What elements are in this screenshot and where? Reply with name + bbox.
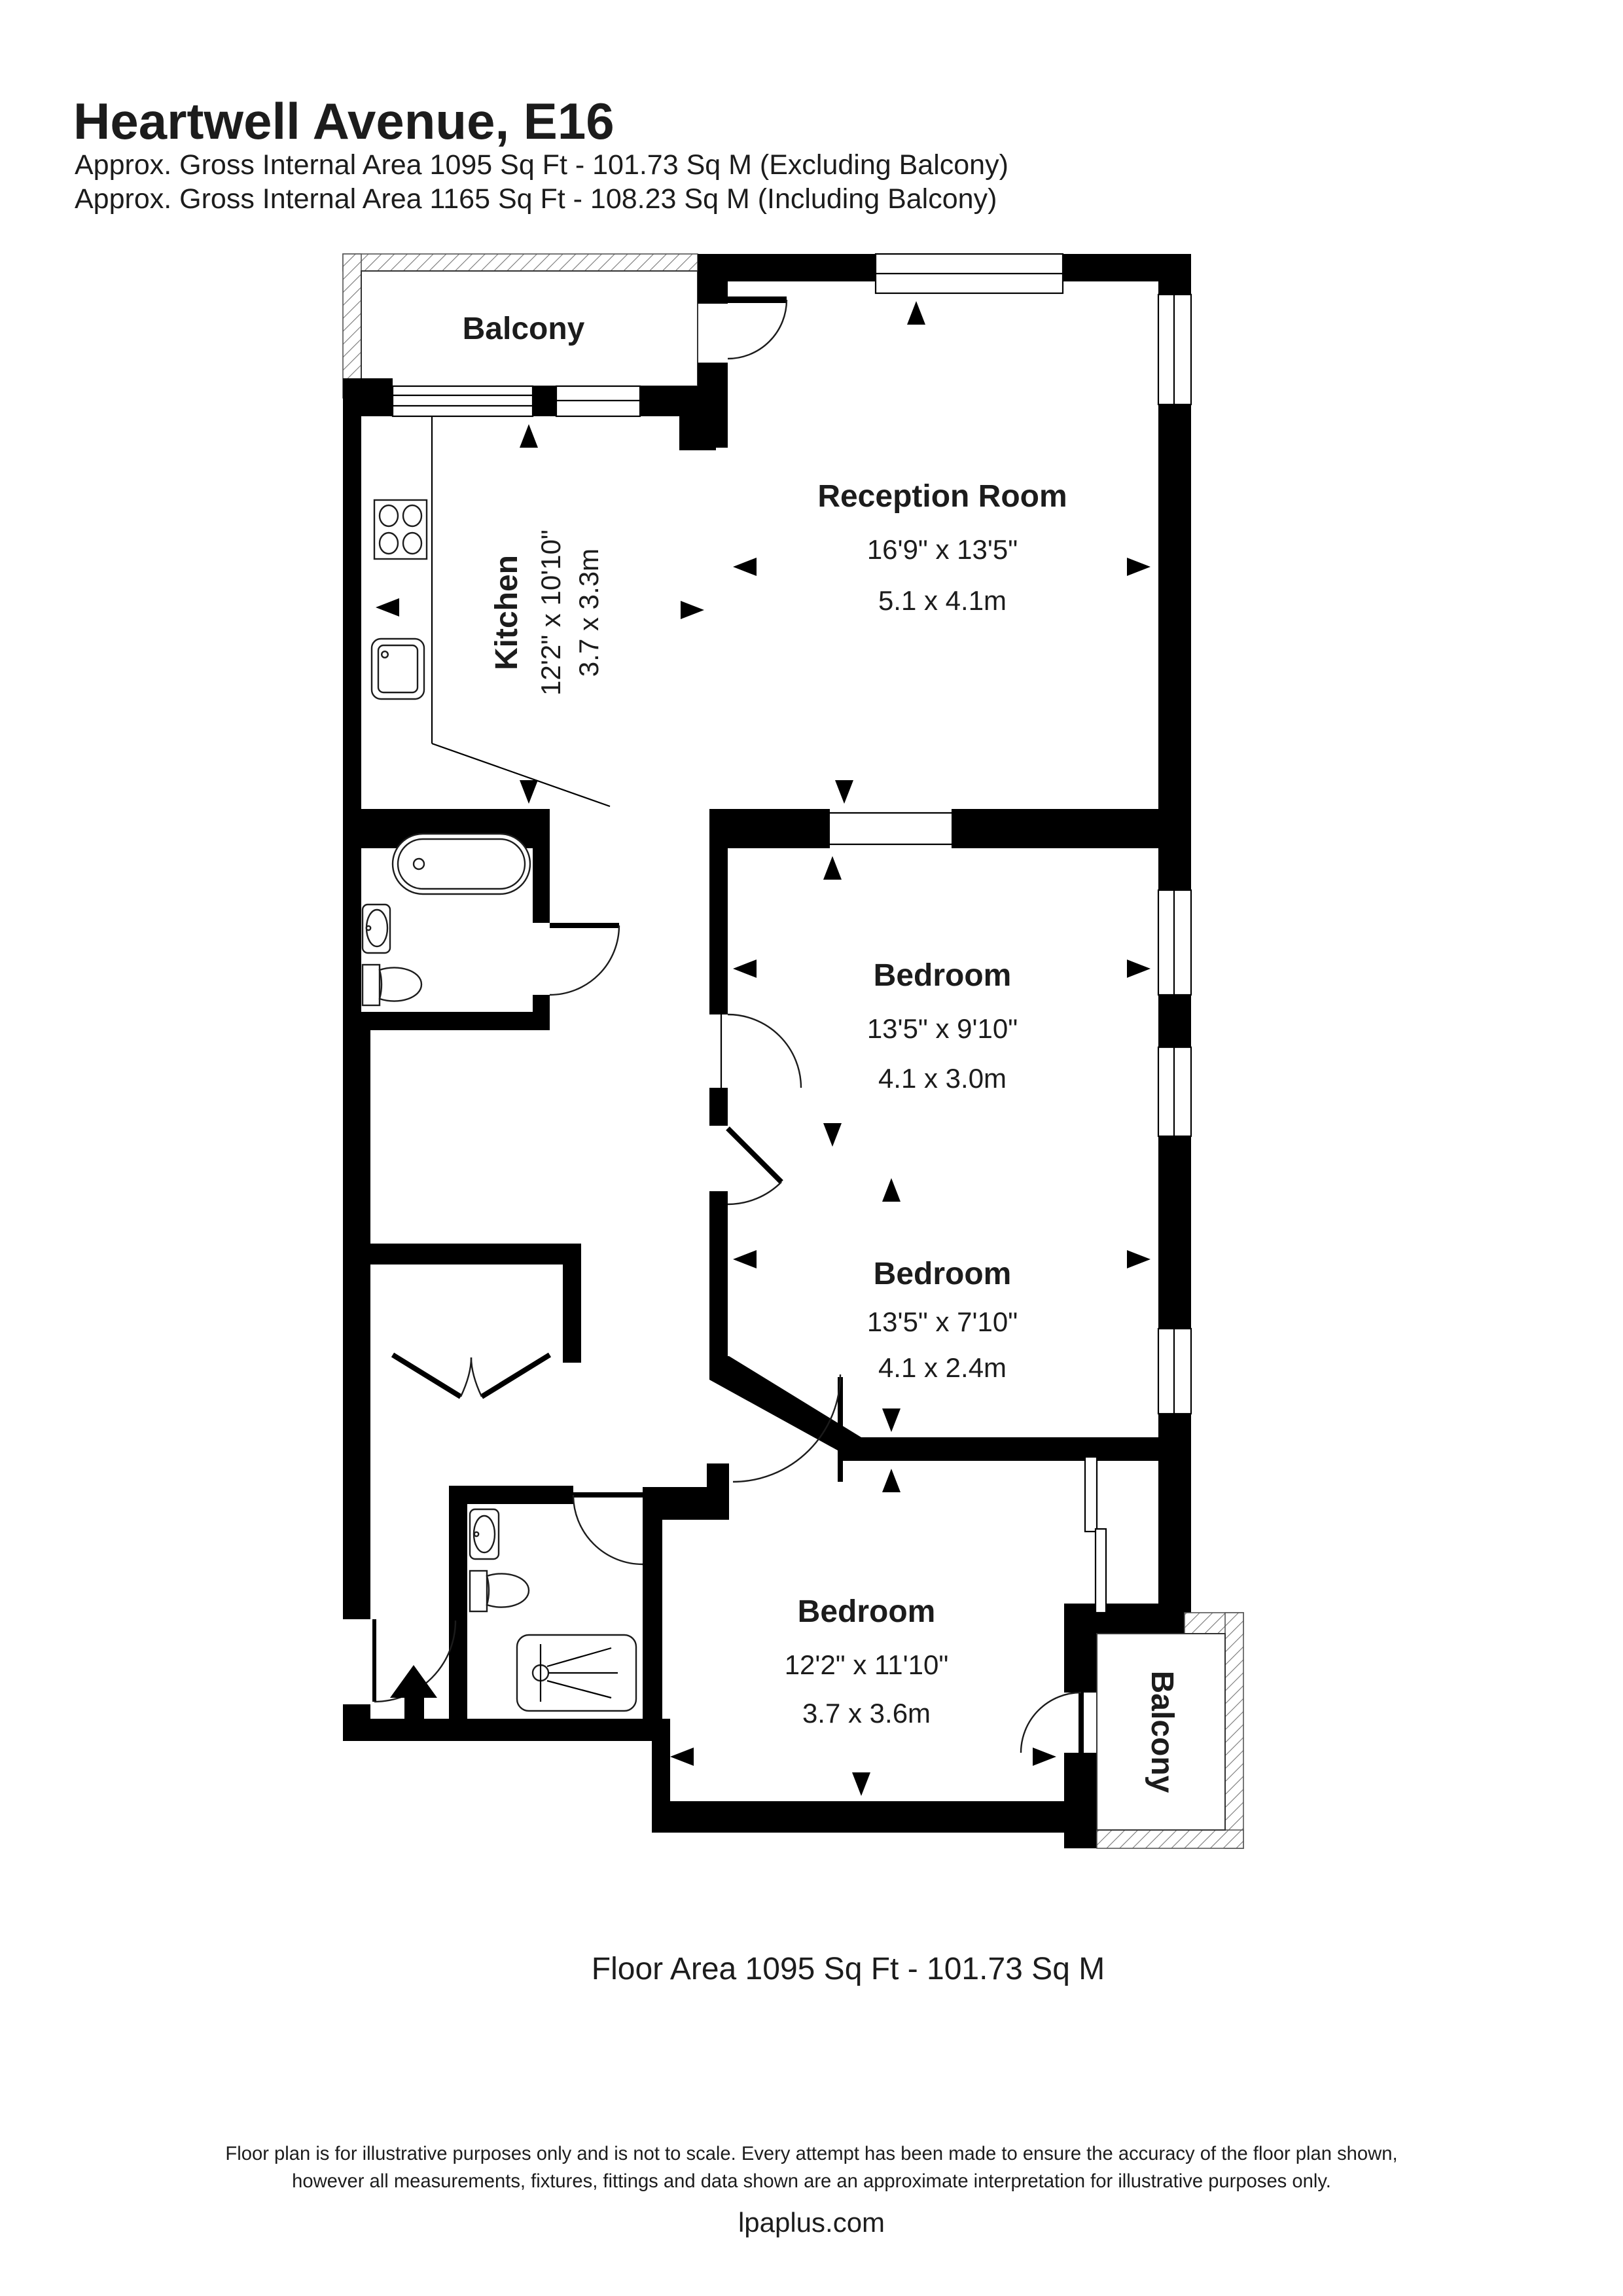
balcony-top-hatch-left bbox=[343, 254, 361, 398]
window-bedroom2-right bbox=[1158, 1329, 1191, 1414]
label-balcony-top: Balcony bbox=[463, 312, 585, 346]
label-bedroom2: Bedroom 13'5" x 7'10" 4.1 x 2.4m bbox=[867, 1257, 1018, 1383]
shower-icon bbox=[517, 1635, 636, 1711]
label-bedroom1-imperial: 13'5" x 9'10" bbox=[867, 1013, 1018, 1044]
label-bedroom3-name: Bedroom bbox=[798, 1594, 936, 1629]
label-bedroom2-name: Bedroom bbox=[874, 1257, 1012, 1291]
label-reception-name: Reception Room bbox=[817, 479, 1067, 514]
label-bedroom1-metric: 4.1 x 3.0m bbox=[878, 1063, 1007, 1094]
subtitle-excluding-balcony: Approx. Gross Internal Area 1095 Sq Ft -… bbox=[75, 149, 1008, 181]
opening-reception-bedroom1 bbox=[830, 810, 952, 847]
floorplan-page: Heartwell Avenue, E16 Approx. Gross Inte… bbox=[0, 0, 1623, 2296]
floor-area-text: Floor Area 1095 Sq Ft - 101.73 Sq M bbox=[592, 1952, 1105, 1986]
label-reception-metric: 5.1 x 4.1m bbox=[878, 585, 1007, 616]
window-bedroom1-right-lower bbox=[1158, 1047, 1191, 1136]
label-kitchen-metric: 3.7 x 3.3m bbox=[573, 548, 604, 677]
label-reception-imperial: 16'9" x 13'5" bbox=[867, 534, 1018, 565]
disclaimer-line2: however all measurements, fixtures, fitt… bbox=[292, 2171, 1331, 2192]
label-bedroom3-metric: 3.7 x 3.6m bbox=[802, 1698, 931, 1729]
kitchen-sink-icon bbox=[372, 639, 424, 699]
label-bedroom3: Bedroom 12'2" x 11'10" 3.7 x 3.6m bbox=[785, 1594, 949, 1729]
bathroom1-sink-icon bbox=[363, 905, 390, 953]
bathtub-icon bbox=[393, 834, 530, 894]
window-bedroom1-right-upper bbox=[1158, 890, 1191, 995]
page-title: Heartwell Avenue, E16 bbox=[73, 92, 615, 150]
balcony-top-hatch-top bbox=[343, 254, 698, 271]
window-balcony-small bbox=[556, 386, 640, 416]
website-text: lpaplus.com bbox=[738, 2207, 885, 2238]
label-balcony-bottom: Balcony bbox=[1145, 1671, 1179, 1793]
label-kitchen-name: Kitchen bbox=[490, 555, 524, 670]
label-kitchen-imperial: 12'2" x 10'10" bbox=[535, 529, 566, 696]
balcony-bottom-hatch-right bbox=[1225, 1613, 1243, 1848]
window-reception-top bbox=[876, 254, 1063, 293]
bathroom2-sink-icon bbox=[470, 1509, 499, 1559]
label-bedroom2-metric: 4.1 x 2.4m bbox=[878, 1352, 1007, 1383]
window-kitchen-balcony bbox=[393, 386, 533, 416]
label-bedroom1-name: Bedroom bbox=[874, 958, 1012, 993]
label-bedroom3-imperial: 12'2" x 11'10" bbox=[785, 1649, 949, 1680]
label-bedroom1: Bedroom 13'5" x 9'10" 4.1 x 3.0m bbox=[867, 958, 1018, 1094]
balcony-bottom-hatch-bottom bbox=[1097, 1830, 1243, 1848]
floorplan-drawing: Heartwell Avenue, E16 Approx. Gross Inte… bbox=[0, 0, 1623, 2296]
label-bedroom2-imperial: 13'5" x 7'10" bbox=[867, 1306, 1018, 1337]
subtitle-including-balcony: Approx. Gross Internal Area 1165 Sq Ft -… bbox=[75, 183, 997, 215]
disclaimer-line1: Floor plan is for illustrative purposes … bbox=[225, 2144, 1397, 2164]
window-reception-right bbox=[1158, 295, 1191, 404]
stove-icon bbox=[374, 500, 427, 559]
